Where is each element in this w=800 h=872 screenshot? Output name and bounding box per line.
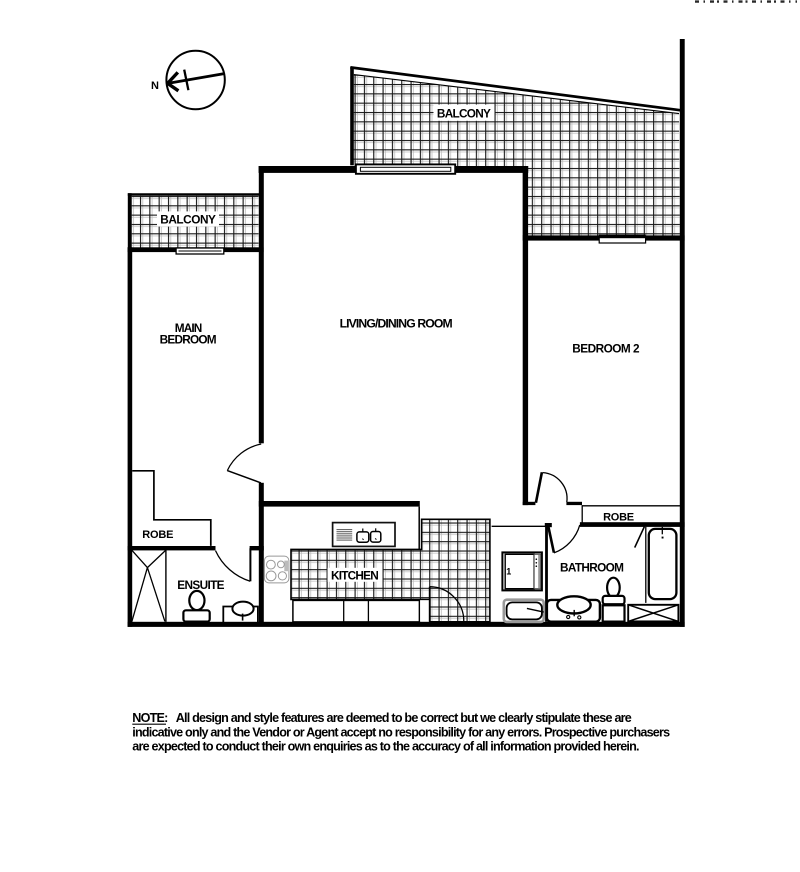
svg-text:1: 1 (506, 567, 511, 577)
svg-text:BATHROOM: BATHROOM (560, 560, 624, 574)
svg-text:BEDROOM 2: BEDROOM 2 (572, 342, 640, 356)
svg-text:indicative only and the Vendor: indicative only and the Vendor or Agent … (132, 725, 670, 739)
svg-text:ENSUITE: ENSUITE (177, 578, 224, 592)
svg-text:BALCONY: BALCONY (160, 212, 216, 226)
svg-text:are expected to conduct their: are expected to conduct their own enquir… (132, 740, 639, 754)
svg-text:N: N (151, 80, 159, 92)
svg-text:ROBE: ROBE (603, 511, 634, 523)
svg-text:ROBE: ROBE (142, 529, 173, 541)
svg-text:NOTE: All design and style f: NOTE: All design and style features are … (132, 711, 632, 725)
svg-text:BALCONY: BALCONY (437, 107, 491, 121)
svg-text:LIVING/DINING ROOM: LIVING/DINING ROOM (340, 316, 453, 330)
svg-text:KITCHEN: KITCHEN (331, 568, 379, 582)
svg-text:BEDROOM: BEDROOM (160, 333, 217, 347)
